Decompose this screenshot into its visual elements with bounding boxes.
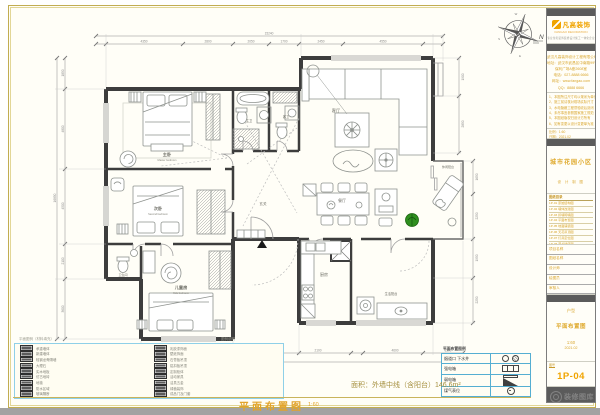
legend-swatch	[20, 374, 33, 380]
legend-label: 新建墙体	[36, 351, 50, 356]
legend-row: 地毯	[15, 380, 149, 385]
svg-text:客卫: 客卫	[283, 114, 290, 119]
svg-text:主卧: 主卧	[163, 151, 172, 158]
legend-row: 定制柜体	[149, 368, 283, 373]
sheet-scale-value: 1:60	[547, 340, 595, 345]
svg-text:2800: 2800	[204, 40, 211, 44]
title-block-band	[547, 139, 595, 146]
title-block-band	[547, 295, 595, 302]
field-rows: 项目名称图纸名称设计师绘图员审核人	[547, 245, 595, 295]
legend-row: 乳胶漆饰面	[149, 346, 283, 351]
note-line: 6、如有变更以设计变更单为准	[549, 122, 595, 127]
legend-row: 绿植装饰	[149, 386, 283, 391]
compass-icon: N W S E	[491, 8, 545, 61]
svg-text:W: W	[515, 12, 518, 16]
page: { "footer": { "title": "平面布置图", "scale":…	[0, 0, 600, 415]
legend-swatch	[20, 385, 33, 391]
legend-swatch	[20, 357, 33, 363]
legend-label: 防水区域	[36, 386, 50, 391]
note-line: 5、本图纸版权归设计方所有	[549, 116, 595, 121]
legend-swatch	[154, 368, 167, 374]
legend-swatch	[154, 363, 167, 369]
legend-column-2: 乳胶漆饰面壁纸饰面石膏板吊顶铝扣板吊顶定制柜体活动家具洁具五金绿植装饰成品门及门…	[149, 344, 283, 398]
svg-text:主卫: 主卫	[246, 118, 253, 123]
field-row: 绘图员	[547, 275, 595, 285]
legend-label: 成品门及门套	[170, 391, 190, 396]
project-section: 城市花园小区 设 计 制 图	[547, 146, 595, 194]
legend-label: 壁纸饰面	[170, 351, 184, 356]
company-line: 网址：www.fangao.com	[547, 78, 595, 84]
legend-label: 玻璃隔断	[36, 391, 50, 396]
svg-text:玄关: 玄关	[259, 201, 267, 206]
legend-row: 新建墙体	[15, 351, 149, 356]
floor-plan-svg: 主卧 Master bedroom 次卧 Second bedroom 儿童房 …	[11, 8, 546, 400]
svg-text:2050: 2050	[247, 40, 254, 44]
legend-column-1: 承重墙体新建墙体轻钢龙骨隔墙大理石实木地板仿古地砖地毯防水区域玻璃隔断	[15, 344, 149, 398]
brand-section: 凡高装饰 FANGAO DECORATION 专业住宅装饰装修设计施工一体化企业	[547, 16, 595, 44]
sheet-name-box: 户型 平面布置图 1:60 2021.02	[547, 302, 595, 362]
legend-label: 实木地板	[36, 369, 50, 374]
svg-text:1650: 1650	[475, 173, 479, 180]
field-row: 审核人	[547, 285, 595, 295]
legend-row: 成品门及门套	[149, 391, 283, 396]
material-legend: 承重墙体新建墙体轻钢龙骨隔墙大理石实木地板仿古地砖地毯防水区域玻璃隔断 乳胶漆饰…	[14, 343, 284, 399]
company-line: QQ：8888 6666	[547, 85, 595, 91]
meta-info: 比例：1:60 日期：2021.02	[547, 129, 595, 139]
legend-label: 承重墙体	[36, 346, 50, 351]
project-name: 城市花园小区	[547, 157, 595, 166]
furniture	[111, 65, 464, 331]
legend-label: 大理石	[36, 363, 46, 368]
legend-swatch	[154, 374, 167, 380]
legend-row: 铝扣板吊顶	[149, 363, 283, 368]
symbol-table-title: 平面布置图例	[443, 347, 466, 352]
drawing-index-title: 图纸目录	[549, 194, 593, 201]
legend-header-left: 平面图例（材料填充）	[19, 337, 54, 342]
svg-text:4550: 4550	[379, 40, 386, 44]
legend-label: 定制柜体	[170, 369, 184, 374]
legend-swatch	[20, 391, 33, 397]
title-block: 凡高装饰 FANGAO DECORATION 专业住宅装饰装修设计施工一体化企业…	[546, 8, 596, 403]
sheet-date: 2021.02	[547, 346, 595, 350]
drawing-index-list: 1P-01 原始结构图1P-02 墙体改建图1P-03 拆墙砌墙图1P-04 平…	[549, 201, 593, 245]
legend-label: 洁具五金	[170, 380, 184, 385]
svg-text:儿童房: 儿童房	[174, 284, 188, 291]
svg-text:2250: 2250	[475, 296, 479, 303]
drawing-number-box: 图号 1P-04	[547, 362, 595, 387]
general-notes: 1、本图所注尺寸均以毫米为单位2、施工前请核对现场实际尺寸3、水电隐蔽工程须验收…	[547, 93, 595, 129]
legend-row: 轻钢龙骨隔墙	[15, 357, 149, 362]
title-block-band	[547, 44, 595, 51]
legend-swatch	[20, 363, 33, 369]
sheet-type: 户型	[547, 308, 595, 314]
legend-swatch	[154, 357, 167, 363]
legend-row: 承重墙体	[15, 346, 149, 351]
legend-swatch	[20, 368, 33, 374]
svg-text:1700: 1700	[280, 40, 287, 44]
brand-logo-text: 凡高装饰	[563, 19, 591, 29]
legend-swatch	[20, 380, 33, 386]
watermark-text: 装修图库	[564, 392, 594, 402]
title-block-band	[547, 9, 595, 16]
svg-text:Master bedroom: Master bedroom	[158, 158, 177, 162]
symbol-label: 强电箱	[442, 364, 491, 373]
legend-label: 轻钢龙骨隔墙	[36, 357, 56, 362]
company-info: 武汉凡高装饰设计工程有限公司地址：武汉市武昌区中南路99号保利广场A座2608室…	[547, 51, 595, 93]
svg-text:2100: 2100	[61, 257, 65, 264]
svg-text:餐厅: 餐厅	[338, 197, 346, 203]
sheet-scale: 1:60	[308, 402, 319, 408]
svg-text:4500: 4500	[61, 202, 65, 209]
legend-row: 玻璃隔断	[15, 391, 149, 396]
entrance-marker	[257, 240, 267, 248]
meter-symbol-icon	[491, 387, 530, 395]
legend-label: 铝扣板吊顶	[170, 363, 187, 368]
svg-text:Kids bedroom: Kids bedroom	[173, 291, 189, 295]
legend-row: 壁纸饰面	[149, 351, 283, 356]
svg-text:2850: 2850	[461, 120, 465, 127]
svg-text:3600: 3600	[61, 305, 65, 312]
svg-text:E: E	[519, 54, 521, 58]
symbol-table-row: 烟道口 下水井	[442, 354, 530, 364]
field-row: 图纸名称	[547, 255, 595, 265]
legend-swatch	[154, 385, 167, 391]
svg-text:休闲阳台: 休闲阳台	[442, 164, 454, 169]
svg-text:4350: 4350	[140, 40, 147, 44]
legend-label: 绿植装饰	[170, 386, 184, 391]
legend-label: 石膏板吊顶	[170, 357, 187, 362]
legend-swatch	[154, 391, 167, 397]
svg-text:生活阳台: 生活阳台	[385, 291, 398, 296]
field-row: 设计师	[547, 265, 595, 275]
area-note: 面积：外墙中线（含阳台）146.6m²	[351, 380, 461, 390]
svg-text:卫生间: 卫生间	[118, 272, 127, 277]
legend-row: 洁具五金	[149, 380, 283, 385]
circles-symbol-icon	[491, 355, 530, 362]
legend-row: 大理石	[15, 363, 149, 368]
drawing-index: 图纸目录 1P-01 原始结构图1P-02 墙体改建图1P-03 拆墙砌墙图1P…	[547, 194, 595, 245]
legend-row: 防水区域	[15, 386, 149, 391]
field-row: 项目名称	[547, 245, 595, 255]
svg-text:Second bedroom: Second bedroom	[148, 212, 168, 216]
svg-text:4600: 4600	[391, 349, 398, 353]
svg-text:1900: 1900	[461, 73, 465, 80]
svg-text:1950: 1950	[475, 254, 479, 261]
symbol-table: 烟道口 下水井强电箱弱电箱煤气表位	[441, 353, 531, 397]
legend-swatch	[20, 345, 33, 351]
svg-text:15240: 15240	[265, 32, 274, 36]
svg-text:1850: 1850	[61, 69, 65, 76]
triangle-symbol-icon	[491, 375, 530, 386]
legend-header-right: 图例说明	[221, 337, 235, 342]
legend-swatch	[154, 345, 167, 351]
legend-label: 活动家具	[170, 374, 184, 379]
svg-text:厨房: 厨房	[320, 271, 328, 277]
watermark: 装修图库	[550, 391, 594, 403]
legend-row: 实木地板	[15, 368, 149, 373]
legend-row: 仿古地砖	[15, 374, 149, 379]
legend-swatch	[20, 351, 33, 357]
legend-row: 活动家具	[149, 374, 283, 379]
svg-text:2250: 2250	[475, 212, 479, 219]
svg-text:2450: 2450	[317, 40, 324, 44]
svg-text:N: N	[539, 34, 544, 41]
watermark-logo-icon	[550, 391, 562, 403]
signature-row: 设 计 制 图	[547, 179, 595, 184]
brand-logo-icon	[552, 20, 561, 29]
legend-label: 乳胶漆饰面	[170, 346, 187, 351]
drawing-number-label: 图号	[549, 363, 555, 368]
svg-text:2100: 2100	[314, 349, 321, 353]
svg-text:次卧: 次卧	[154, 205, 163, 212]
legend-row: 石膏板吊顶	[149, 357, 283, 362]
svg-text:S: S	[498, 37, 500, 41]
svg-text:16850: 16850	[53, 193, 57, 202]
legend-label: 仿古地砖	[36, 374, 50, 379]
svg-text:客厅: 客厅	[332, 107, 340, 114]
note-line: 2、施工前请核对现场实际尺寸	[549, 100, 595, 105]
symbol-table-row: 强电箱	[442, 364, 530, 374]
legend-swatch	[154, 351, 167, 357]
rect-symbol-icon	[491, 365, 530, 372]
brand-band-text: 专业住宅装饰装修设计施工一体化企业	[547, 36, 595, 40]
drawing-number: 1P-04	[547, 371, 595, 382]
symbol-label: 烟道口 下水井	[442, 354, 491, 363]
sheet-name: 平面布置图	[547, 322, 595, 330]
legend-swatch	[154, 380, 167, 386]
drawing-sheet: 主卧 Master bedroom 次卧 Second bedroom 儿童房 …	[8, 5, 596, 408]
plant-icon	[406, 214, 419, 227]
sheet-title: 平面布置图	[239, 398, 304, 413]
svg-text:4800: 4800	[61, 125, 65, 132]
brand-sub-text: FANGAO DECORATION	[547, 30, 595, 34]
legend-label: 地毯	[36, 380, 43, 385]
